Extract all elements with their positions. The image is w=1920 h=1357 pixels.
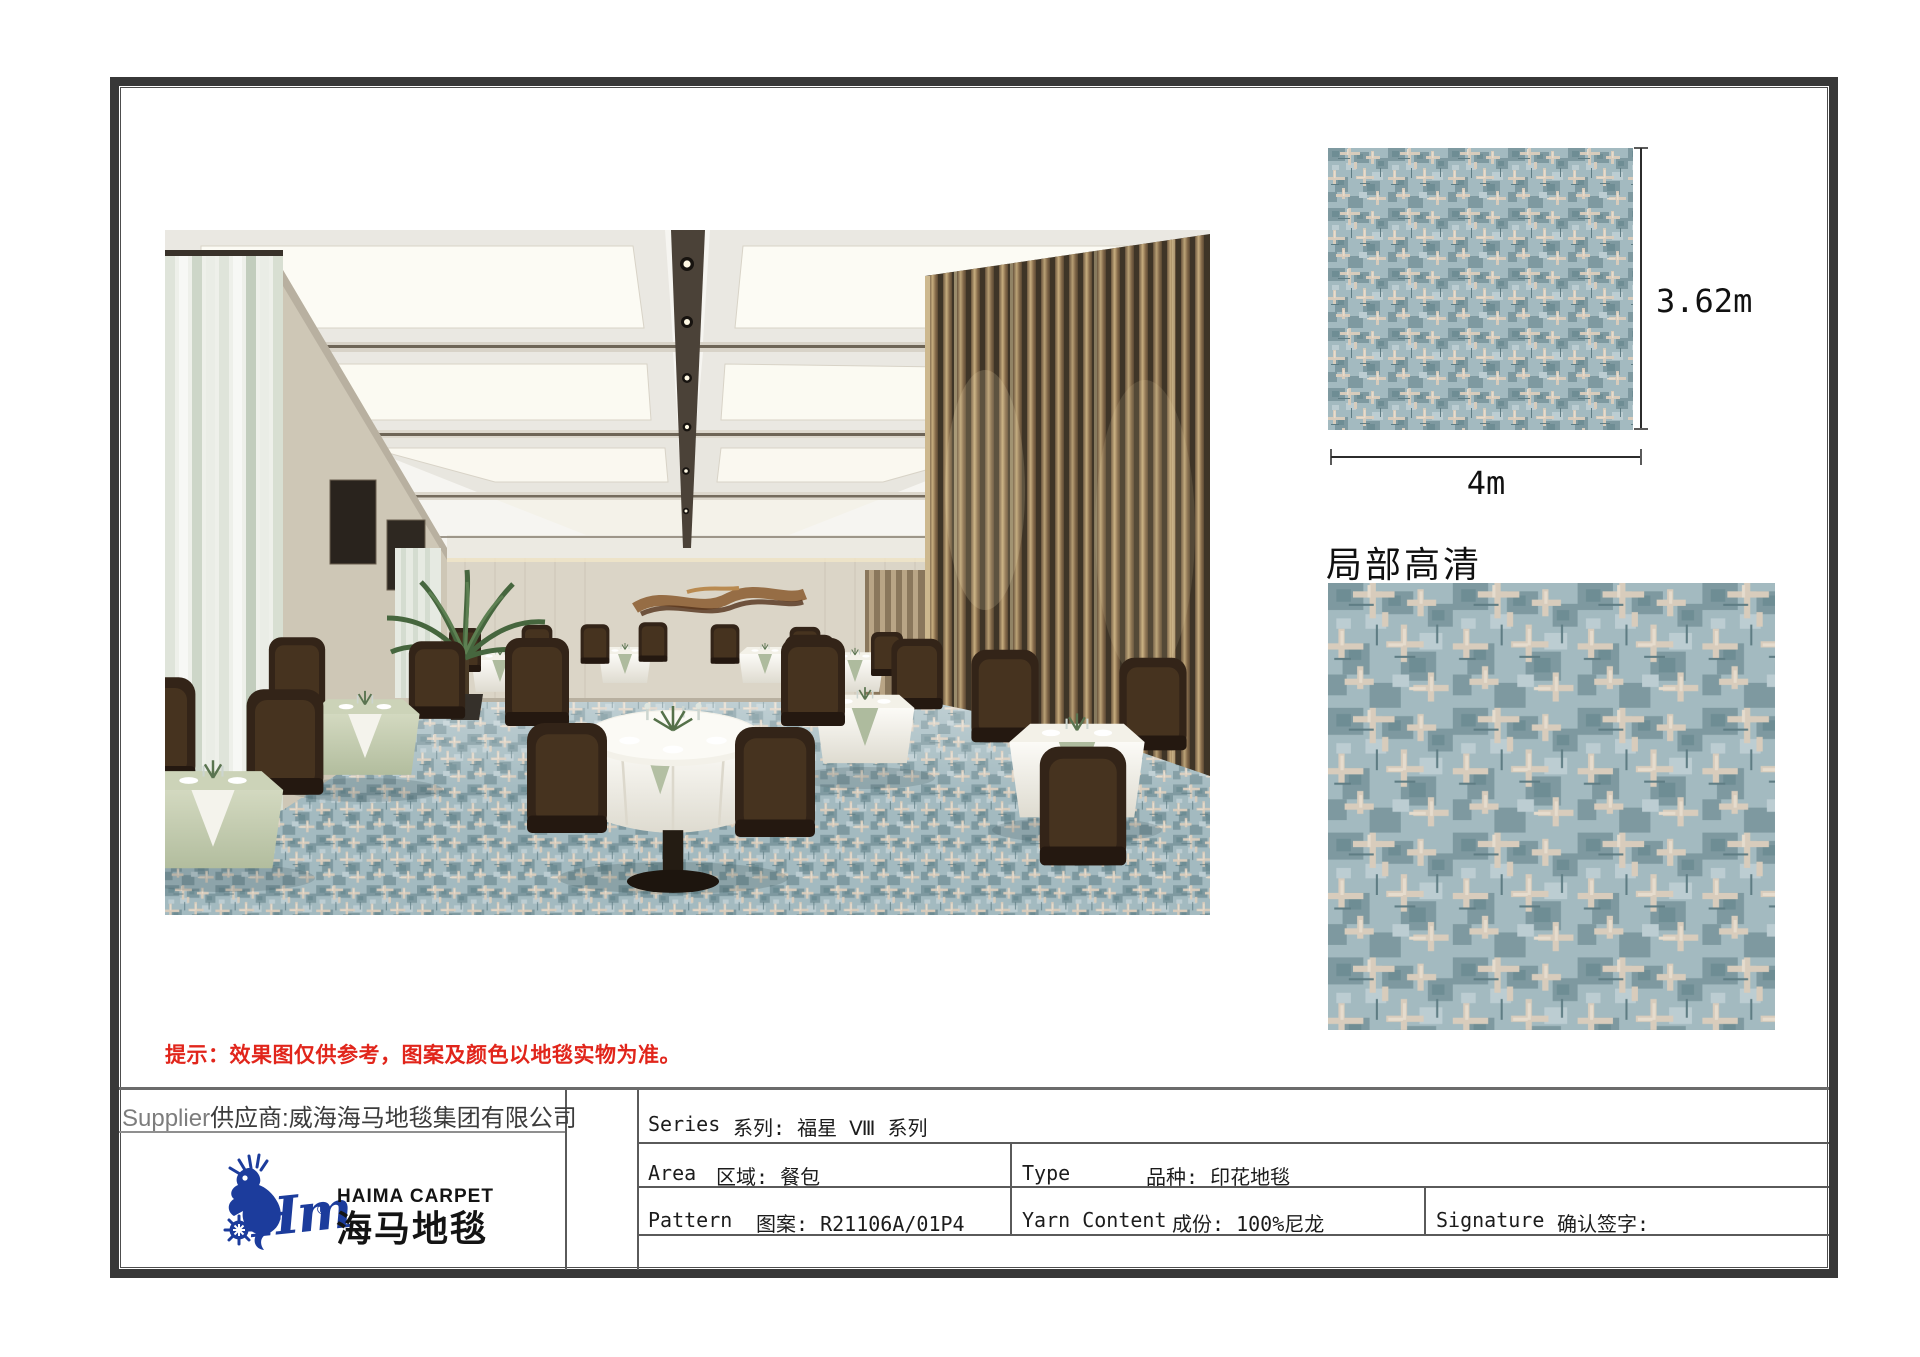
supplier-label-en: Supplier [122, 1105, 210, 1132]
yarn-label: Yarn Content [1022, 1208, 1167, 1232]
carpet-swatch-full [1328, 148, 1633, 430]
registered-trademark-icon: ® [317, 1201, 327, 1217]
pattern-value: 图案: R21106A/01P4 [756, 1208, 965, 1237]
area-label: Area [648, 1161, 696, 1185]
signature-value: 确认签字: [1557, 1208, 1649, 1237]
dim-line-horizontal [1331, 456, 1641, 458]
spec-table-left-border [637, 1090, 639, 1270]
area-value: 区域: 餐包 [716, 1161, 820, 1190]
detail-section-title: 局部高清 [1326, 536, 1482, 588]
disclaimer-notice: 提示：效果图仅供参考，图案及颜色以地毯实物为准。 [165, 1039, 681, 1069]
series-label: Series [648, 1112, 720, 1136]
dim-cap-bottom [1634, 428, 1648, 430]
dim-line-vertical [1640, 148, 1642, 430]
width-dimension-label: 4m [1331, 464, 1641, 502]
yarn-value: 成份: 100%尼龙 [1172, 1208, 1324, 1237]
carpet-spec-sheet: 3.62m 4m 局部高清 提示：效果图仅供参考，图案及颜色以地毯实物为准。 S… [0, 0, 1920, 1357]
signature-col-divider [1424, 1186, 1426, 1236]
type-label: Type [1022, 1161, 1070, 1185]
series-value: 系列: 福星 Ⅷ 系列 [733, 1112, 928, 1141]
pattern-label: Pattern [648, 1208, 732, 1232]
curtain-rod [165, 250, 283, 256]
type-value: 品种: 印花地毯 [1146, 1161, 1290, 1190]
carpet-swatch-detail [1328, 583, 1775, 1030]
dim-cap-right [1640, 449, 1642, 465]
titleblock-top-border [119, 1087, 1829, 1090]
supplier-label-cn: 供应商:威海海马地毯集团有限公司 [210, 1105, 577, 1132]
spec-row1-border [637, 1142, 1829, 1144]
signature-label: Signature [1436, 1208, 1544, 1232]
room-rendering-image [165, 230, 1210, 915]
supplier-row: Supplier供应商:威海海马地毯集团有限公司 [122, 1098, 577, 1133]
brand-name-cn: 海马地毯 [336, 1200, 488, 1252]
spec-col-divider [1010, 1142, 1012, 1236]
height-dimension-label: 3.62m [1656, 282, 1752, 320]
